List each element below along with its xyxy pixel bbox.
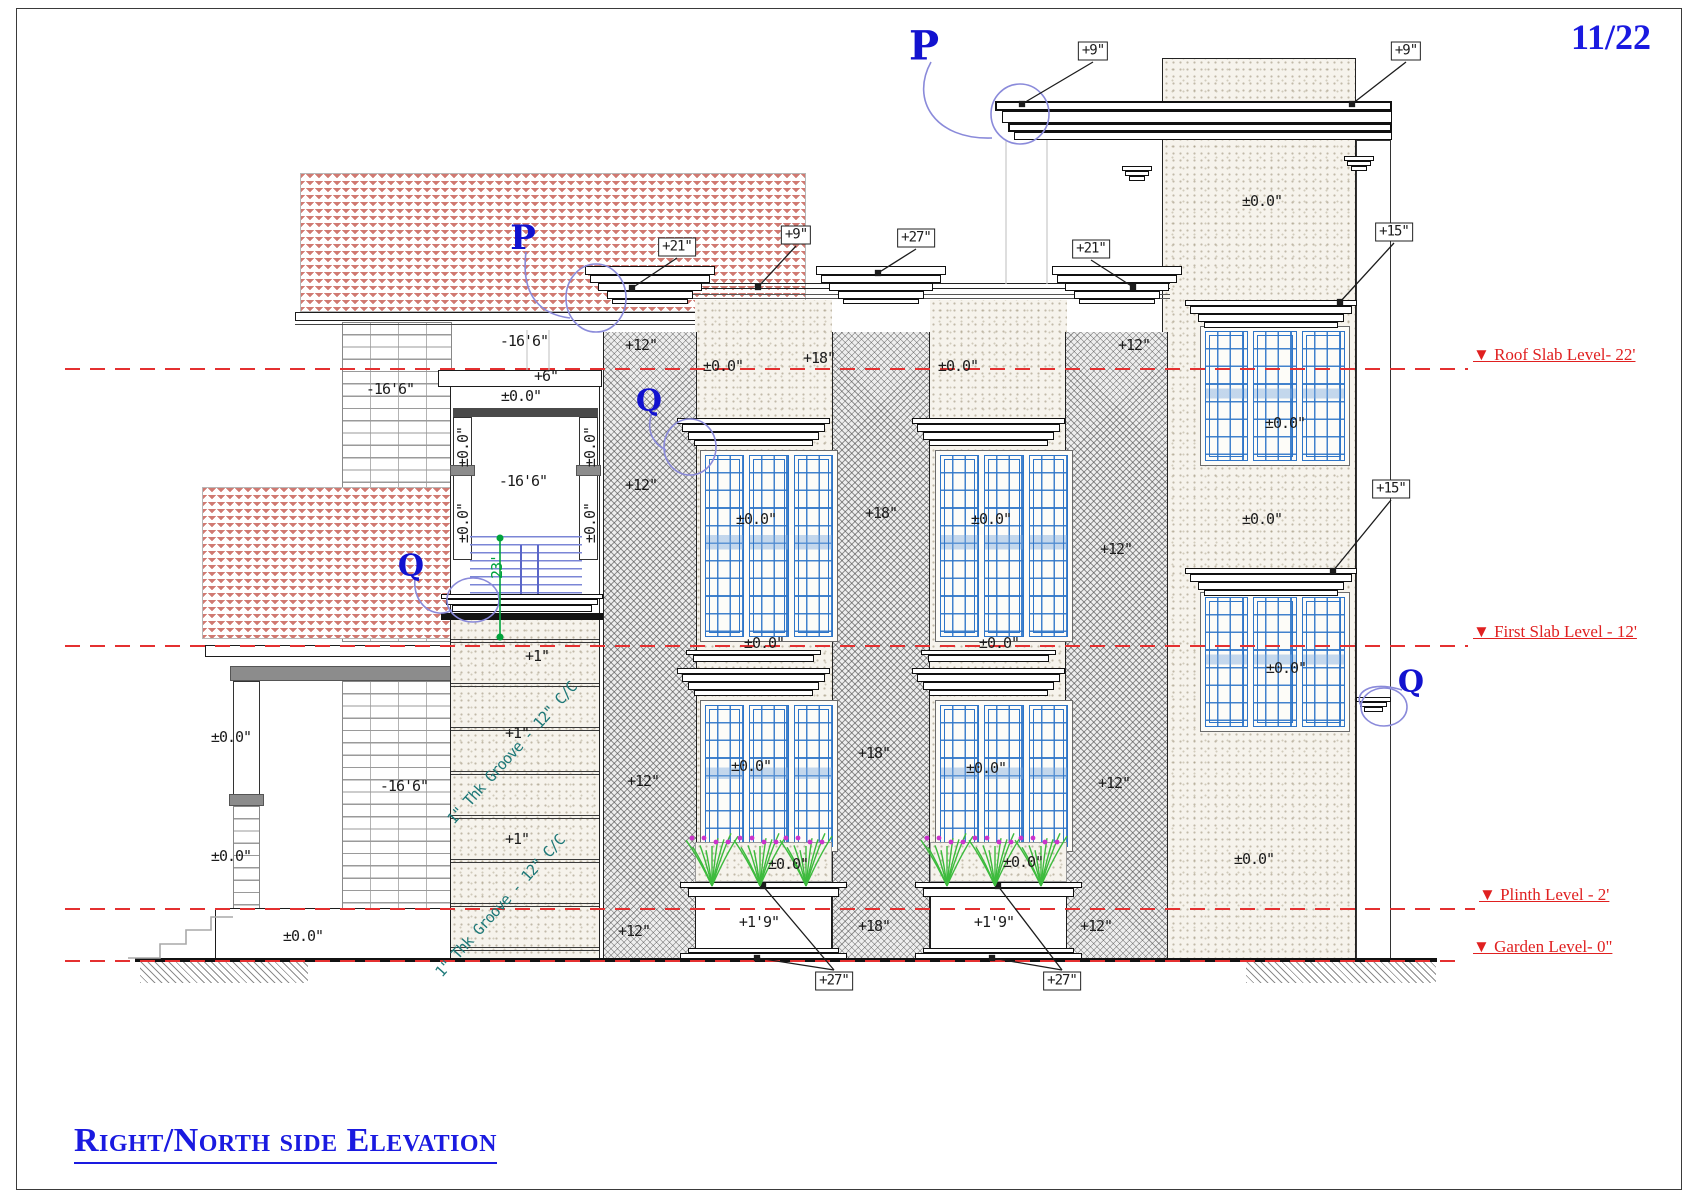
roof-cornice-band-1 [995, 101, 1392, 111]
right-window-1-cornice-band [1190, 306, 1352, 314]
right-window-1-pane [1302, 331, 1345, 461]
right-window-2 [1200, 592, 1350, 732]
bay-1-upper-window-pane [794, 455, 833, 637]
elevation-drawing-sheet: ▼ Roof Slab Level- 22'▼ First Slab Level… [0, 0, 1697, 1200]
stair-beam [438, 370, 602, 387]
bay-2-lower-window-pane [984, 705, 1023, 847]
bay-2-upper-window-pane [984, 455, 1023, 637]
ground-hatch-left [140, 962, 308, 983]
bay-1-upper-window-cornice [677, 418, 830, 446]
porch-plinth-slab [215, 908, 455, 962]
right-window-1-cornice-band [1204, 322, 1338, 328]
bay-2-lower-window-cornice-band [929, 690, 1048, 696]
bay-1-lower-window-pane [794, 705, 833, 847]
lower-roof-tile-hatch [202, 487, 452, 639]
plinth-level-line [65, 908, 1475, 910]
capital-band [612, 299, 687, 304]
drawing-title: Right/North side Elevation [74, 1122, 497, 1164]
stair-tower-cornice-molding-band [452, 605, 591, 612]
right-building-wall [1162, 58, 1356, 962]
bay-1-upper-window-cornice-band [688, 432, 818, 440]
stair-railing [470, 536, 582, 594]
bay-1-upper-window [700, 450, 838, 642]
bay-1-lower-window [700, 700, 838, 852]
bay-1-upper-window-pane [705, 455, 744, 637]
bay-2-upper-window-cornice-band [917, 424, 1061, 432]
bay-2-lower-window-cornice [912, 668, 1065, 696]
roof-cornice-band-2 [1002, 111, 1392, 123]
upper-roof-tile-hatch [300, 173, 806, 312]
capital [1052, 266, 1182, 304]
bay-2-lower-window-pane [1029, 705, 1068, 847]
bay-1-upper-window-cornice-band [682, 424, 826, 432]
bay-2-upper-window-pane [940, 455, 979, 637]
capital [816, 266, 946, 304]
stair-tower-cornice-molding [441, 594, 603, 612]
ground-hatch-right [1246, 962, 1436, 983]
capital-band [1052, 266, 1182, 275]
sheet-number: 11/22 [1571, 16, 1651, 58]
capital-band [843, 299, 918, 304]
bay-2-planter [930, 842, 1067, 882]
capital-band [1057, 275, 1177, 283]
right-window-1-pane [1205, 331, 1248, 461]
right-window-1-pane [1253, 331, 1296, 461]
corbel-band [1129, 176, 1146, 181]
bay-2-lower-window-pane [940, 705, 979, 847]
capital-band [585, 266, 715, 275]
bay-2-lower-window-cornice-band [917, 674, 1061, 682]
stair-opening-head [453, 408, 598, 417]
capital [585, 266, 715, 304]
bay-2-upper-window-cornice-band [929, 440, 1048, 446]
bay-1-lower-window-pane [749, 705, 788, 847]
capital-band [1079, 299, 1154, 304]
bay-1-sill [686, 650, 821, 662]
right-building-pilaster [1356, 140, 1391, 962]
q-detail-molding-bands-band [1364, 707, 1383, 712]
capital-band [821, 275, 941, 283]
bay-2-pedestal-cap-band [923, 888, 1073, 897]
garden-level-line [65, 960, 1457, 962]
right-window-2-cornice-band [1204, 590, 1338, 596]
bay-2-sill-band [928, 655, 1050, 662]
bay-1-upper-window-cornice-band [694, 440, 813, 446]
roof-slab-level-line [65, 368, 1468, 370]
stair-railing-post [520, 545, 522, 600]
corbel [1122, 166, 1152, 181]
right-window-2-cornice [1185, 568, 1357, 596]
stair-groove-wall [450, 620, 600, 962]
stair-railing-post [537, 545, 539, 600]
porch-beam [230, 666, 454, 681]
bay-2-pedestal [930, 896, 1067, 949]
groove-lines [451, 639, 599, 962]
right-window-2-cornice-band [1198, 582, 1344, 590]
porch-column-brick-base [233, 806, 260, 909]
bay-1-lower-window-pane [705, 705, 744, 847]
bay-1-lower-window-cornice-band [694, 690, 813, 696]
bay-1-lower-window-cornice-band [682, 674, 826, 682]
corbel [1344, 156, 1374, 171]
bay-2-upper-window-pane [1029, 455, 1068, 637]
stair-tower-cornice-band [441, 613, 603, 620]
right-window-2-pane [1205, 597, 1248, 727]
bay-1-pedestal-cap [680, 882, 847, 897]
capital-band [607, 291, 693, 299]
roof-cornice-band-3 [1008, 123, 1392, 132]
bay-1-planter [695, 842, 832, 882]
capital-band [816, 266, 946, 275]
capital-band [598, 283, 702, 291]
corbel-band [1351, 166, 1368, 171]
first-slab-level-line [65, 645, 1468, 647]
capital-band [590, 275, 710, 283]
right-window-1-cornice [1185, 300, 1357, 328]
bay-2-lower-window-cornice-band [923, 682, 1053, 690]
bay-1-upper-window-pane [749, 455, 788, 637]
bay-2-upper-window [935, 450, 1073, 642]
bay-2-pedestal-cap [915, 882, 1082, 897]
porch-column-shaft [233, 681, 260, 796]
porch-column-band [229, 794, 264, 806]
bay-1-lower-window-cornice-band [688, 682, 818, 690]
bay-2-lower-window [935, 700, 1073, 852]
bay-2-upper-window-cornice [912, 418, 1065, 446]
roof-cornice-band-4 [1014, 132, 1392, 140]
right-window-2-pane [1302, 597, 1345, 727]
capital-band [829, 283, 933, 291]
stair-jamb-band-right [576, 465, 601, 476]
bay-1-sill-band [693, 655, 815, 662]
q-detail-molding-bands [1356, 697, 1391, 712]
bay-1-lower-window-cornice [677, 668, 830, 696]
capital-band [1074, 291, 1160, 299]
bay-2-upper-window-cornice-band [923, 432, 1053, 440]
brick-wall-porch [342, 681, 452, 909]
bay-1-pedestal-cap-band [688, 888, 838, 897]
bay-1-pedestal [695, 896, 832, 949]
right-window-2-pane [1253, 597, 1296, 727]
capital-band [838, 291, 924, 299]
capital-band [1065, 283, 1169, 291]
stair-jamb-band-left [450, 465, 475, 476]
bay-2-sill [921, 650, 1056, 662]
right-window-2-cornice-band [1190, 574, 1352, 582]
right-window-1 [1200, 326, 1350, 466]
right-window-1-cornice-band [1198, 314, 1344, 322]
